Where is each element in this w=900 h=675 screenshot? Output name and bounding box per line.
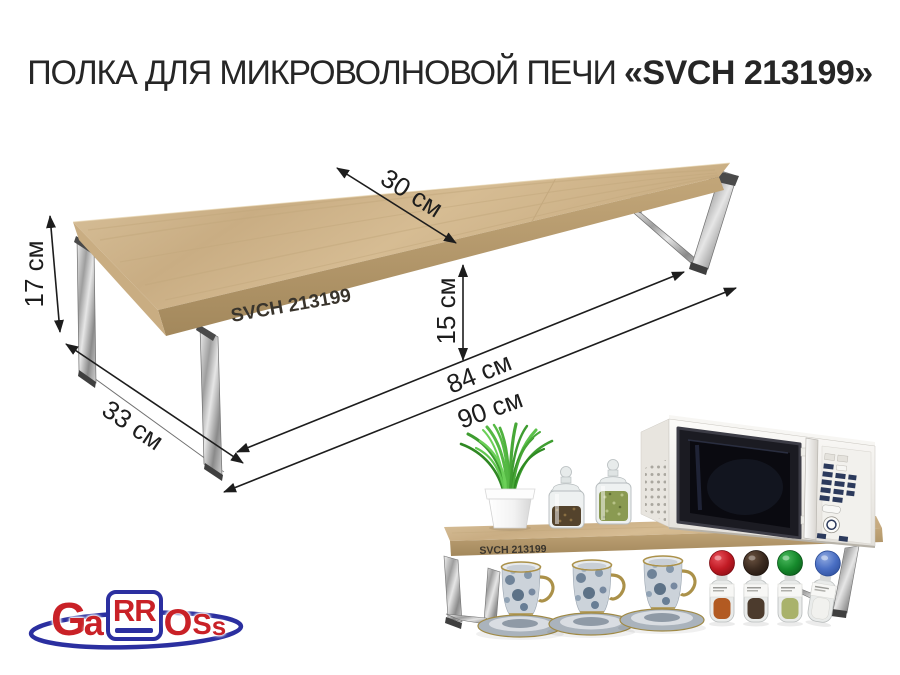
logo-letter-rr: RR xyxy=(113,595,156,626)
spice-bottle-brown xyxy=(743,551,769,627)
logo-letter-a: a xyxy=(84,607,104,639)
spice-bottle-red xyxy=(709,551,735,627)
logo-letter-g: G xyxy=(51,599,87,640)
product-card: ПОЛКА ДЛЯ МИКРОВОЛНОВОЙ ПЕЧИ «SVCH 21319… xyxy=(0,0,900,675)
dim-line-17 xyxy=(50,216,60,332)
dim-label-left-height: 17 см xyxy=(19,240,49,307)
microwave-handle xyxy=(804,438,818,540)
brand-logo: G a RR O S s xyxy=(24,588,262,670)
grass-blades xyxy=(461,424,552,494)
dim-label-side-depth: 33 см xyxy=(97,394,169,456)
flower-pot xyxy=(485,489,535,499)
spice-bottle-green xyxy=(777,551,803,627)
microwave-door xyxy=(678,428,800,538)
logo-underline xyxy=(115,628,153,633)
logo-letter-s2: s xyxy=(212,615,226,638)
product-illustration: SVCH 213199 30 см 17 см 33 см 15 см 84 с… xyxy=(0,0,900,675)
glass-jar-dark-herbs xyxy=(549,467,584,529)
cup-3 xyxy=(618,556,706,634)
glass-jar-green-herbs xyxy=(596,460,631,525)
dim-label-clearance: 15 см xyxy=(431,277,461,344)
logo-letter-s1: S xyxy=(192,612,211,638)
logo-letters: G a RR O S s xyxy=(51,590,226,641)
potted-plant xyxy=(461,424,552,531)
lifestyle-photo: SVCH 213199 xyxy=(444,415,883,640)
main-shelf-photo: SVCH 213199 30 см 17 см 33 см 15 см 84 с… xyxy=(19,163,739,492)
logo-letter-o: O xyxy=(164,606,193,639)
microwave xyxy=(641,415,875,547)
logo-rr-box: RR xyxy=(106,590,163,641)
lifestyle-printed-label: SVCH 213199 xyxy=(479,543,547,557)
